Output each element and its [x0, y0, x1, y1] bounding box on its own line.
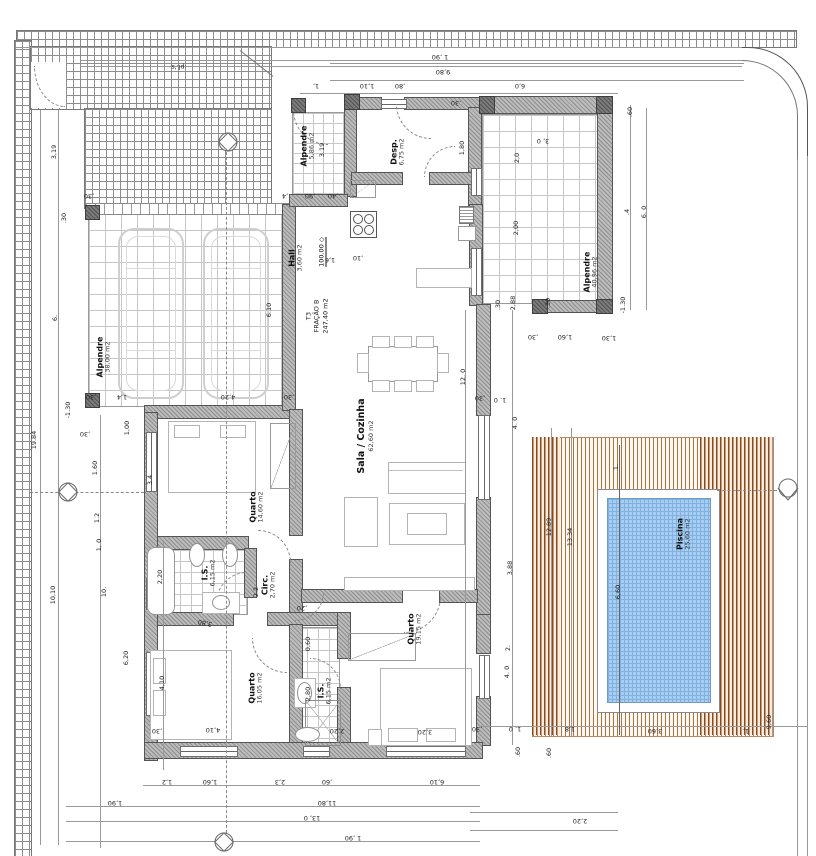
- dimension-label: 13, 0: [304, 814, 321, 822]
- car-2: [203, 228, 269, 399]
- dimension-label: 1,2: [162, 778, 172, 786]
- dimension-label: 9,60: [765, 715, 773, 729]
- dimension-label: 1,80: [458, 141, 466, 155]
- room-label-hall: Hall 3,60 m2: [288, 244, 305, 271]
- dimension-label: 2,00: [512, 221, 520, 235]
- dimension-label: .60: [514, 747, 522, 757]
- dimension-label: 1,8: [565, 725, 575, 733]
- dimension-label: ,4: [282, 192, 288, 200]
- room-label-alpendre-right: Alpendre 40,96 m2: [583, 252, 600, 293]
- dimension-label: ,30: [84, 192, 94, 200]
- dim-line: [330, 63, 744, 64]
- window: [180, 746, 238, 757]
- dimension-label: ,30: [528, 333, 538, 341]
- section-line-right: [717, 490, 777, 491]
- site-wall-patch-b: [84, 108, 272, 209]
- dimension-label: ,40: [328, 192, 338, 200]
- section-marker-icon: [213, 127, 243, 157]
- dim-line: [630, 105, 631, 310]
- dimension-label: 3,88: [506, 561, 514, 575]
- wall: [477, 498, 490, 615]
- dim-line: [66, 841, 480, 842]
- wall: [440, 590, 477, 602]
- window: [471, 248, 482, 296]
- chair: [437, 353, 449, 373]
- dimension-label: ,80: [395, 82, 405, 90]
- section-line-left: [30, 492, 144, 493]
- wall: [290, 195, 347, 206]
- door-arc: [396, 104, 431, 139]
- dimension-label: ,30: [284, 393, 294, 401]
- dimension-label: -1.30: [619, 297, 627, 314]
- room-label-quarto-3: Quarto 19,15 m2: [407, 613, 424, 644]
- dimension-label: 0,60: [304, 637, 312, 651]
- dimension-label: 6. 0: [640, 206, 648, 218]
- post: [597, 97, 612, 113]
- car-1: [118, 228, 184, 399]
- section-marker-icon: [773, 475, 803, 505]
- pillow: [153, 690, 166, 716]
- dimension-label: ,60: [322, 778, 332, 786]
- section-line-vertical: [226, 152, 227, 848]
- wall: [145, 406, 295, 418]
- dimension-label: .30: [60, 213, 68, 223]
- dimension-label: 2,20: [330, 727, 344, 735]
- dimension-label: 10.: [100, 587, 108, 597]
- dimension-label: 4. 0: [511, 417, 519, 429]
- wall-edge-line-1: [80, 60, 742, 61]
- dimension-label: 3, 0: [537, 137, 549, 145]
- dimension-label: 3,60: [648, 727, 662, 735]
- chair: [394, 380, 412, 392]
- dimension-label: 1,60: [203, 778, 217, 786]
- dimension-label: 6,20: [122, 651, 130, 665]
- site-boundary-top: [16, 47, 742, 48]
- post: [597, 300, 612, 313]
- dimension-label: .30: [451, 99, 461, 107]
- dimension-label: ,30: [86, 393, 96, 401]
- street-line-inner: [797, 159, 798, 856]
- dimension-label: 2,20: [156, 570, 164, 584]
- wall: [477, 697, 490, 745]
- dimension-label: 3,80: [197, 618, 213, 629]
- sofa-2seat: [344, 497, 378, 547]
- dim-line: [66, 806, 480, 807]
- chair: [372, 336, 390, 348]
- garage-curb: [85, 203, 292, 215]
- dimension-label: ,90: [305, 192, 315, 200]
- dimension-label: 2,0: [513, 153, 521, 163]
- dimension-label: 3,20: [418, 728, 432, 736]
- section-marker-icon: [53, 477, 83, 507]
- chair: [416, 380, 434, 392]
- dimension-label: 3,19: [50, 145, 58, 159]
- kitchen-appliance-icon: [459, 206, 474, 224]
- dimension-label: 2.: [504, 645, 512, 651]
- bidet-icon: [222, 543, 238, 567]
- chair: [357, 353, 369, 373]
- dimension-label: .60: [545, 748, 553, 758]
- pillow: [174, 425, 200, 438]
- stove-icon: [350, 211, 377, 238]
- dimension-label: 6.10: [265, 303, 273, 317]
- fraction-name: FRAÇÃO B: [313, 300, 321, 333]
- dimension-label: 1,6: [325, 256, 335, 264]
- window: [471, 168, 482, 196]
- chair: [416, 336, 434, 348]
- dimension-label: ,30: [472, 725, 482, 733]
- room-label-desp: Desp. 6,75 m2: [390, 138, 407, 165]
- wall: [547, 301, 597, 312]
- dimension-label: 1,00: [123, 421, 131, 435]
- dimension-label: 1.: [612, 464, 620, 470]
- post: [480, 97, 494, 113]
- dimension-label: 1,60: [558, 333, 572, 341]
- dimension-label: 6,60: [614, 585, 622, 599]
- floor-plan-sheet: Alpendre 38,00 m2 Alpendre 5,86 m2 Desp.…: [0, 0, 816, 856]
- dimension-label: ,30: [80, 430, 90, 438]
- dimension-label: 2.2: [252, 587, 260, 597]
- dimension-label: .30: [544, 298, 552, 308]
- room-label-alpendre-top: Alpendre 5,86 m2: [300, 126, 317, 167]
- dimension-label: 2,80: [304, 687, 312, 701]
- room-label-alpendre-garage: Alpendre 38,00 m2: [96, 337, 113, 378]
- sofa-3seat: [388, 462, 466, 494]
- dimension-label: .30: [494, 300, 502, 310]
- post: [345, 95, 359, 109]
- kitchen-island: [416, 268, 472, 288]
- site-wall-patch-a: [30, 46, 272, 110]
- dimension-label: 13.34: [566, 528, 574, 547]
- dim-line: [480, 726, 808, 727]
- dim-line: [470, 812, 618, 813]
- dim-line: [330, 80, 744, 81]
- window: [386, 746, 466, 757]
- level-diamond-icon: ◇: [318, 237, 326, 242]
- room-label-circ: Circ. 2,70 m2: [261, 571, 278, 598]
- dimension-label: ,30: [152, 727, 162, 735]
- dimension-label: 19.84: [30, 431, 38, 450]
- dimension-label: 12. 0: [459, 369, 467, 386]
- dim-line: [551, 428, 552, 737]
- dim-line: [40, 110, 41, 845]
- post: [86, 206, 99, 219]
- dimension-label: 4. 0: [503, 666, 511, 678]
- dimension-label: 1 ,90: [345, 834, 362, 842]
- dim-line: [66, 821, 480, 822]
- tv-bench: [344, 577, 475, 591]
- wall: [598, 113, 612, 313]
- dim-line: [100, 415, 101, 848]
- dimension-label: 1 ,90: [432, 53, 449, 61]
- sink-icon: [212, 595, 230, 610]
- dimension-label: 3.4: [146, 475, 154, 485]
- pillow: [220, 425, 246, 438]
- door-arc: [258, 530, 291, 563]
- room-label-quarto-2: Quarto 16,05 m2: [248, 672, 265, 703]
- fraction-area: 247,40 m2: [321, 298, 329, 333]
- dimension-label: 10,10: [49, 586, 57, 605]
- room-label-quarto-1: Quarto 14,60 m2: [249, 491, 266, 522]
- dining-table: [368, 346, 438, 382]
- pool-deck-dark-left: [532, 437, 560, 735]
- dimension-label: 1,30: [602, 334, 616, 342]
- dimension-label: 3.19: [318, 143, 326, 157]
- dimension-label: 1,: [743, 727, 749, 735]
- chair: [372, 380, 390, 392]
- section-marker-icon: [209, 828, 239, 856]
- wardrobe-quarto-1: [270, 423, 296, 489]
- dimension-label: pl.'s: [171, 63, 184, 71]
- door-arc: [424, 146, 455, 177]
- dimension-label: 4,10: [158, 676, 166, 690]
- street-line-outer: [807, 156, 808, 856]
- dimension-label: 1, 0: [95, 539, 103, 551]
- dimension-label: 4,10: [206, 726, 220, 734]
- room-label-is-2: I.S. 6,15 m2: [317, 677, 334, 704]
- dimension-label: 1,: [313, 82, 319, 90]
- dimension-label: .60: [626, 107, 634, 117]
- room-label-is-1: I.S. 6,15 m2: [201, 559, 218, 586]
- kitchen-sink-icon: [458, 226, 476, 241]
- dimension-label: ,20: [297, 604, 307, 612]
- coffee-table: [407, 513, 447, 535]
- toilet-icon: [295, 727, 320, 742]
- wall: [283, 205, 295, 410]
- dimension-label: 1.60: [91, 461, 99, 475]
- nightstand: [368, 729, 382, 746]
- dim-line: [512, 310, 513, 745]
- dimension-label: 9,80: [436, 68, 450, 76]
- window: [479, 655, 490, 699]
- dimension-label: 2,20: [573, 817, 587, 825]
- dimension-label: 11,80: [318, 799, 337, 807]
- window: [303, 746, 330, 757]
- chair: [394, 336, 412, 348]
- dimension-label: 1,4: [117, 393, 127, 401]
- dimension-label: .4: [623, 209, 631, 215]
- wall: [477, 615, 490, 653]
- dimension-label: 4,20: [221, 393, 235, 401]
- unit-title: T3 FRAÇÃO B 247,40 m2: [304, 298, 329, 333]
- dimension-label: ,10: [353, 254, 363, 262]
- pool: [607, 498, 711, 703]
- hall-closet: [350, 180, 376, 198]
- glass-door: [478, 415, 490, 500]
- dimension-label: -1.30: [64, 402, 72, 419]
- sofa-back-line: [389, 470, 463, 471]
- room-label-sala-cozinha: Sala / Cozinha 62,60 m2: [357, 398, 375, 473]
- dimension-label: 2,88: [509, 296, 517, 310]
- room-label-piscina: Piscina 25,60 m2: [676, 518, 693, 550]
- dimension-label: ,30: [475, 394, 485, 402]
- dim-line: [571, 428, 572, 737]
- dimension-label: 6.: [51, 315, 59, 321]
- dimension-label: 1. 0: [494, 396, 506, 404]
- dimension-label: 6,0: [515, 82, 525, 90]
- dimension-label: 12.89: [545, 518, 553, 537]
- dimension-label: 2,3: [275, 778, 285, 786]
- pillow: [388, 728, 418, 742]
- dim-line: [470, 830, 618, 831]
- wall: [481, 97, 612, 113]
- dimension-label: 6,10: [430, 778, 444, 786]
- door-arc: [252, 638, 287, 673]
- dimension-label: 1,90: [108, 799, 122, 807]
- dimension-label: 1.2: [93, 513, 101, 523]
- dimension-label: 1. 0: [509, 725, 521, 733]
- dimension-label: 1,10: [360, 82, 374, 90]
- dim-line: [300, 93, 618, 94]
